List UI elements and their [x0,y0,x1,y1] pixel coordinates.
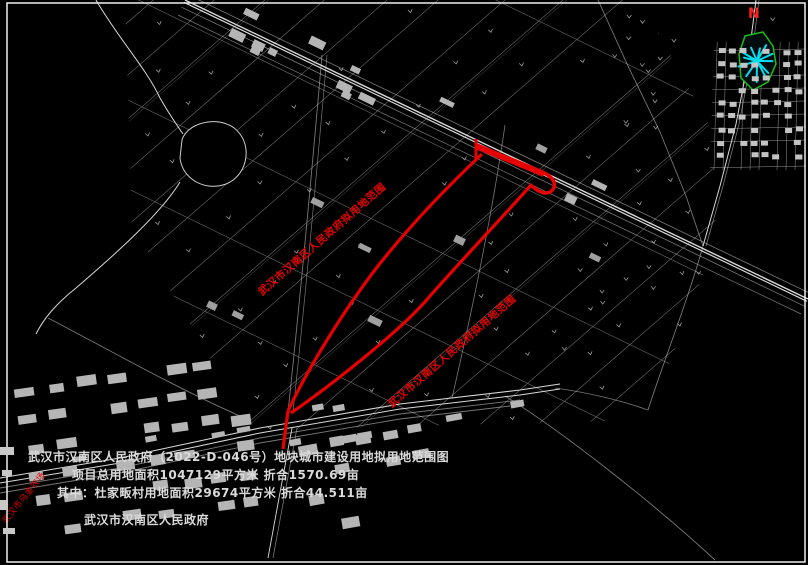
building [772,154,779,159]
building [761,152,768,157]
edge-mark [3,528,15,534]
building [795,154,802,159]
north-indicator: N [748,6,760,22]
building [751,128,758,133]
building [144,422,160,434]
building [795,61,802,66]
building [796,126,803,131]
building [785,114,792,119]
building [740,141,747,146]
building [719,100,726,105]
title-line-3: 其中：杜家畈村用地面积29674平方米 折合44.511亩 [57,485,368,500]
building [751,63,758,68]
building [761,100,768,105]
building [763,75,770,80]
building [728,128,735,133]
building [751,100,758,105]
building [763,113,770,118]
building [783,50,790,55]
building [717,113,724,118]
building [774,100,781,105]
building [785,87,792,92]
building [739,88,746,93]
building [795,50,802,55]
building [110,402,127,415]
cad-drawing: 武汉市汉南区人民政府拟用地范围 武汉市汉南区人民政府拟用地范围 武汉市乌金农场 … [0,0,808,565]
building [36,494,51,506]
building [785,128,792,133]
building [794,140,801,145]
building [784,75,791,80]
building [717,74,724,79]
building [718,61,725,66]
building [729,48,736,53]
building [752,76,759,81]
building [761,141,768,146]
building [730,102,737,107]
building [751,89,758,94]
title-signature: 武汉市汉南区人民政府 [84,512,209,527]
building [739,115,746,120]
building [763,49,770,54]
building [752,113,759,118]
pond [180,122,246,187]
title-line-2: 项目总用地面积1047129平方米 折合1570.69亩 [72,467,359,482]
building [730,62,737,67]
building [717,153,724,158]
building [717,141,724,146]
title-line-1: 武汉市汉南区人民政府（2022-D-046号）地块城市建设用地拟用地范围图 [28,449,449,464]
building [795,89,802,94]
map-canvas[interactable]: 武汉市汉南区人民政府拟用地范围 武汉市汉南区人民政府拟用地范围 武汉市乌金农场 … [0,0,808,565]
building [728,113,735,118]
building [794,74,801,79]
building [784,102,791,107]
building [719,128,726,133]
building [729,74,736,79]
building [719,48,726,53]
edge-mark [2,470,12,476]
building [740,63,747,68]
building [772,88,779,93]
building [751,141,758,146]
building [739,48,746,53]
building [783,62,790,67]
edge-mark [0,447,14,455]
building [752,152,759,157]
edge-mark [0,500,8,510]
